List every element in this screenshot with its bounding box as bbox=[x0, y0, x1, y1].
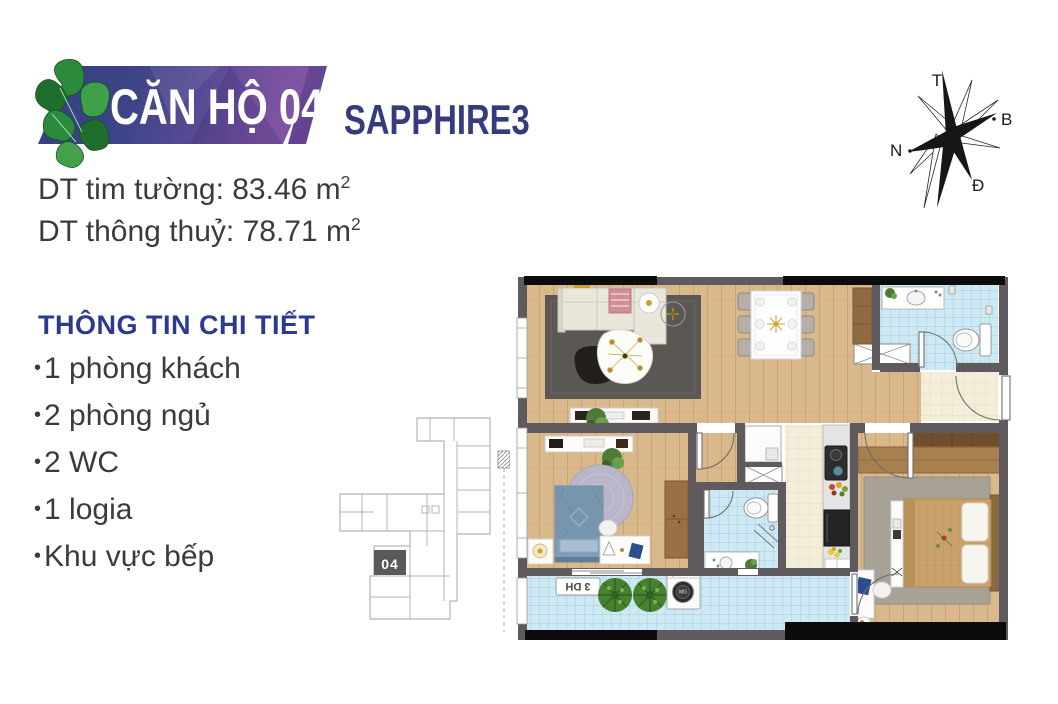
master-bedroom bbox=[854, 430, 1000, 631]
brochure-page: CĂN HỘ 04 SAPPHIRE3 DT tim tường: 83.46 … bbox=[0, 0, 1058, 704]
unit-04-label: 04 bbox=[381, 556, 399, 572]
washing-machine: MG bbox=[667, 571, 700, 609]
window bbox=[517, 578, 527, 624]
nightstand bbox=[528, 539, 553, 564]
details-heading: THÔNG TIN CHI TIẾT bbox=[38, 310, 315, 341]
project-name: SAPPHIRE3 bbox=[344, 96, 530, 144]
pillow bbox=[962, 545, 988, 583]
technical-shaft bbox=[854, 344, 910, 364]
compass-rose: T B N Đ bbox=[880, 56, 1025, 221]
area-net-value: 78.71 bbox=[243, 215, 318, 248]
plant-icon bbox=[633, 578, 667, 612]
chair bbox=[599, 520, 617, 536]
details-list: 1 phòng khách 2 phòng ngủ 2 WC 1 logia K… bbox=[34, 352, 241, 587]
area-net: DT thông thuỷ: 78.71 m2 bbox=[38, 214, 361, 249]
list-item: Khu vực bếp bbox=[34, 540, 241, 574]
balcony-opening bbox=[738, 569, 758, 575]
double-bed bbox=[903, 495, 1000, 591]
bath-accessory bbox=[949, 286, 955, 294]
corridor-floor bbox=[872, 372, 921, 423]
list-item: 1 logia bbox=[34, 493, 241, 527]
washer-label: MG bbox=[679, 590, 687, 596]
pillow bbox=[962, 503, 988, 541]
compass-dot bbox=[908, 149, 912, 153]
compass-label-n: N bbox=[890, 141, 902, 160]
compass-dot bbox=[992, 117, 996, 121]
area-gross-value: 83.46 bbox=[232, 173, 307, 206]
area-gross: DT tim tường: 83.46 m2 bbox=[38, 172, 350, 207]
cooktop bbox=[825, 446, 847, 480]
oven-cabinet bbox=[824, 510, 850, 546]
plant-icon bbox=[598, 578, 632, 612]
dining-area bbox=[738, 291, 814, 359]
area-gross-unit: m bbox=[316, 173, 341, 206]
list-item: 2 phòng ngủ bbox=[34, 399, 241, 433]
tall-cabinet bbox=[853, 288, 872, 344]
list-item: 2 WC bbox=[34, 446, 241, 480]
tv-console bbox=[570, 408, 658, 423]
list-item: 1 phòng khách bbox=[34, 352, 241, 386]
kitchen bbox=[823, 425, 850, 573]
label-3dh: 3 DH bbox=[565, 580, 590, 592]
chair bbox=[873, 582, 891, 598]
compass-label-d: Đ bbox=[972, 176, 984, 195]
wall-living-bedroom2 bbox=[518, 423, 697, 433]
compass-label-t: T bbox=[932, 71, 942, 90]
single-bed bbox=[555, 486, 603, 562]
wardrobe bbox=[665, 481, 688, 558]
compass-needle bbox=[908, 70, 1000, 208]
balcony-unit-label: 3 DH bbox=[556, 578, 600, 595]
technical-shaft bbox=[745, 466, 782, 484]
area-gross-label: DT tim tường: bbox=[38, 173, 224, 206]
bath-accessory bbox=[986, 306, 992, 314]
section-marker bbox=[498, 451, 510, 468]
banner: CĂN HỘ 04 SAPPHIRE3 bbox=[30, 58, 530, 158]
tv-shelf bbox=[545, 436, 633, 452]
area-net-unit: m bbox=[326, 215, 351, 248]
entry-hall-floor bbox=[921, 372, 998, 421]
building-keyplan: 04 bbox=[332, 406, 510, 646]
unit-title: CĂN HỘ 04 bbox=[110, 78, 323, 136]
area-net-label: DT thông thuỷ: bbox=[38, 215, 234, 248]
compass-label-b: B bbox=[1001, 110, 1012, 129]
sliding-door bbox=[572, 569, 642, 575]
pillow bbox=[560, 540, 598, 552]
floorplan: 3 DH MG bbox=[512, 272, 1012, 644]
